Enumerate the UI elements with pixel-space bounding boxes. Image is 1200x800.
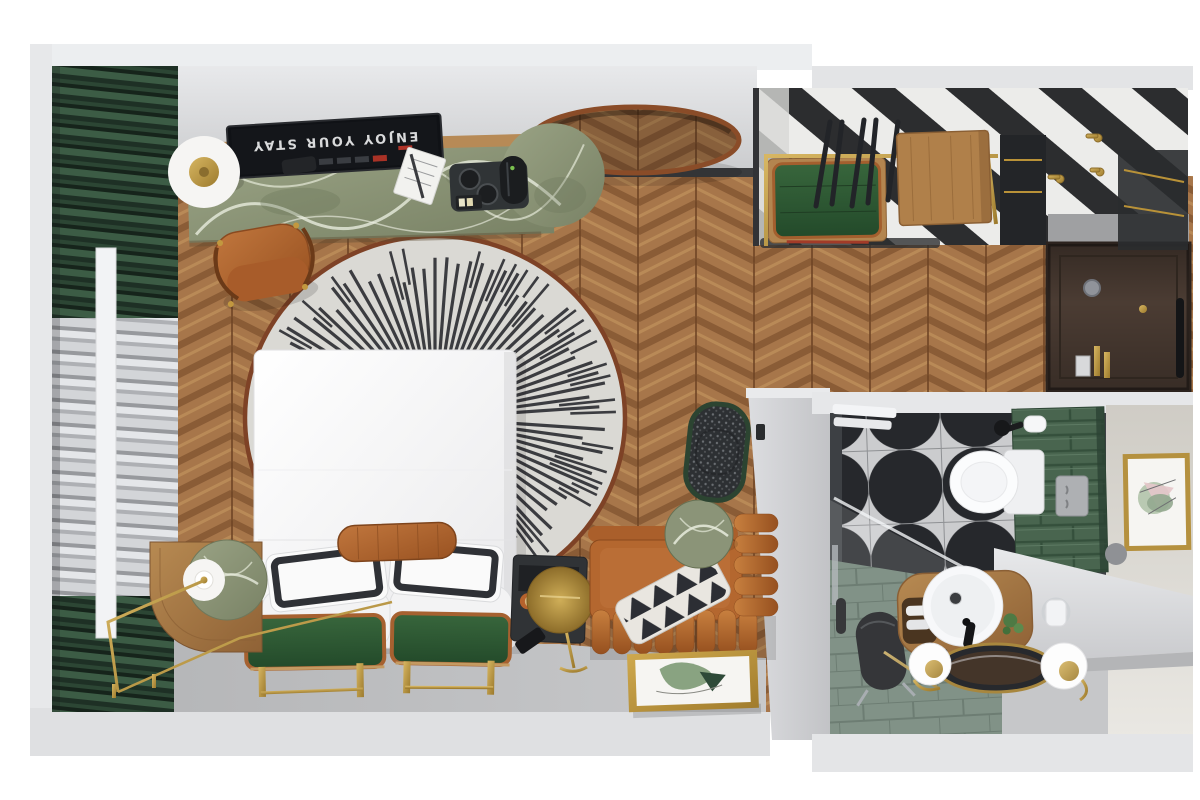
sofa-ribs-right — [734, 514, 778, 616]
bathroom-artwork — [1125, 455, 1189, 548]
window-frame-bar — [96, 248, 116, 638]
tweed-armchair — [683, 401, 751, 503]
keyhole — [1139, 305, 1147, 313]
light-switch — [756, 424, 765, 440]
drain — [949, 592, 961, 604]
drawer-cabinet — [896, 130, 991, 225]
wardrobe-wall-cap — [812, 66, 1193, 90]
minibar-bottle — [1104, 352, 1110, 378]
key-card — [1076, 356, 1090, 376]
bathroom-bottom-wall — [812, 734, 1193, 772]
red-strap — [787, 240, 869, 243]
peephole — [1084, 280, 1100, 296]
left-wall — [30, 44, 52, 740]
floorplan-svg: ENJOY YOUR STAY — [0, 0, 1200, 800]
leather-bolster — [337, 522, 456, 562]
paper-roll — [1024, 416, 1046, 432]
leaning-artwork — [627, 650, 761, 719]
hand-towel — [1046, 600, 1066, 626]
kettle — [499, 155, 528, 204]
flush-plate — [1056, 476, 1088, 516]
cup — [459, 169, 480, 190]
wardrobe-trim — [753, 88, 759, 246]
oval-mirror — [938, 644, 1054, 692]
towel-ring — [1043, 599, 1069, 626]
bed — [254, 350, 526, 654]
door-closer — [1176, 298, 1184, 378]
wall-dot — [1105, 543, 1127, 565]
entrance-door — [1048, 244, 1189, 390]
minibar-bottle — [1094, 346, 1100, 376]
toilet — [950, 450, 1044, 514]
room-render: ENJOY YOUR STAY — [0, 0, 1200, 800]
